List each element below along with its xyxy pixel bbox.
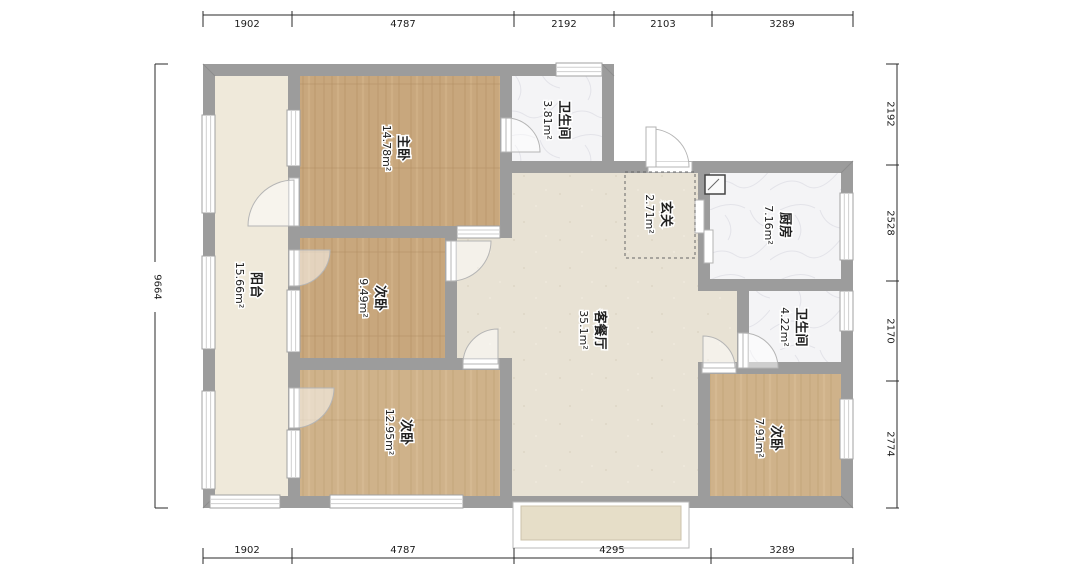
window-bedroom2-transom xyxy=(457,226,500,238)
dim-top-ticks xyxy=(203,11,853,27)
kitchen-fixture-icon xyxy=(705,175,725,194)
balcony-name: 阳台 xyxy=(248,272,264,298)
room-label-living: 客餐厅 35.1m² xyxy=(577,310,608,350)
dim-top-2: 2192 xyxy=(551,19,576,30)
window-balcony-left-3 xyxy=(202,391,215,489)
window-bedroom3-bottom xyxy=(330,495,463,508)
window-bathroom-top xyxy=(556,63,602,76)
dim-top-4: 3289 xyxy=(769,19,794,30)
dim-bottom-2: 4295 xyxy=(599,545,624,556)
bedroom2-area: 9.49m² xyxy=(357,278,370,318)
wall-entry-left xyxy=(512,161,648,173)
bay-window xyxy=(513,502,689,548)
living-name: 客餐厅 xyxy=(592,310,608,349)
floor-plan-canvas: 阳台 15.66m² 主卧 14.78m² 卫生间 3.81m² 玄关 2.71… xyxy=(0,0,1074,576)
bathroom-right-name: 卫生间 xyxy=(793,307,809,346)
room-label-bathroom-right: 卫生间 4.22m² xyxy=(778,307,809,347)
dim-bottom-3: 3289 xyxy=(769,545,794,556)
entry-name: 玄关 xyxy=(658,201,674,227)
window-bedroom4-right xyxy=(840,399,853,459)
bedroom3-name: 次卧 xyxy=(398,419,414,445)
dimension-left: 9664 xyxy=(152,64,169,508)
window-balcony-left-2 xyxy=(202,256,215,349)
window-kitchen-right xyxy=(840,193,853,260)
dim-right-2: 2170 xyxy=(885,318,896,343)
window-balcony-master xyxy=(287,110,300,166)
wall-entry-right xyxy=(692,161,853,173)
kitchen-area: 7.16m² xyxy=(762,205,775,245)
master-area: 14.78m² xyxy=(380,125,393,172)
window-balcony-bedroom3 xyxy=(287,430,300,478)
dim-bottom-ticks xyxy=(203,548,853,564)
dimension-right: 2192 2528 2170 2774 xyxy=(885,64,900,508)
bedroom4-name: 次卧 xyxy=(768,425,784,451)
wall-bedroom3-right xyxy=(500,370,512,496)
dim-right-3: 2774 xyxy=(885,431,896,456)
bathroom-top-name: 卫生间 xyxy=(556,100,572,139)
entry-door xyxy=(646,127,692,173)
bedroom2-name: 次卧 xyxy=(372,285,388,311)
wall-bedroom4-left xyxy=(698,374,710,496)
master-name: 主卧 xyxy=(395,135,411,161)
bedroom4-area: 7.91m² xyxy=(753,418,766,458)
window-balcony-bedroom2 xyxy=(287,290,300,352)
window-bathroom-right xyxy=(840,291,853,331)
dimension-top: 1902 4787 2192 2103 3289 xyxy=(203,11,853,30)
bathroom-right-area: 4.22m² xyxy=(778,307,791,347)
dim-left-0: 9664 xyxy=(152,274,163,299)
wall-kitchen-bottom xyxy=(698,279,853,291)
dim-right-0: 2192 xyxy=(885,101,896,126)
bay-window-sill xyxy=(521,506,681,540)
dim-top-3: 2103 xyxy=(650,19,675,30)
living-area: 35.1m² xyxy=(577,310,590,350)
window-balcony-bottom xyxy=(210,495,280,508)
dim-top-0: 1902 xyxy=(234,19,259,30)
entry-area: 2.71m² xyxy=(643,194,656,234)
floor-plan: 阳台 15.66m² 主卧 14.78m² 卫生间 3.81m² 玄关 2.71… xyxy=(0,0,1074,576)
balcony-area: 15.66m² xyxy=(233,262,246,309)
dim-bottom-1: 4787 xyxy=(390,545,415,556)
kitchen-name: 厨房 xyxy=(777,212,793,238)
bathroom-top-area: 3.81m² xyxy=(541,100,554,140)
dim-bottom-0: 1902 xyxy=(234,545,259,556)
wall-top-outer xyxy=(203,64,614,76)
room-label-bathroom-top: 卫生间 3.81m² xyxy=(541,100,572,140)
window-balcony-left-1 xyxy=(202,115,215,213)
dim-top-1: 4787 xyxy=(390,19,415,30)
wall-bathroom-top-right xyxy=(602,64,614,173)
dim-right-1: 2528 xyxy=(885,210,896,235)
bedroom3-area: 12.95m² xyxy=(383,409,396,456)
